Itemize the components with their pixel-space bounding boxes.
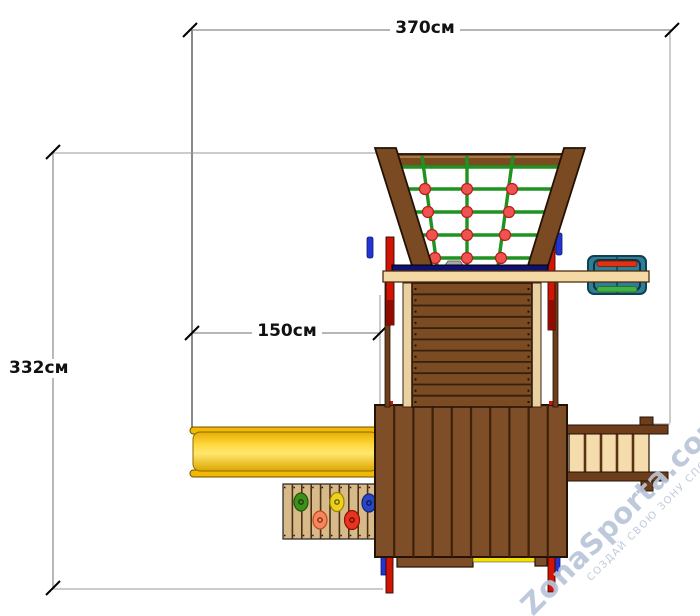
dimension-depth-label: 332см	[4, 359, 66, 378]
tower-body	[375, 401, 567, 557]
top-plank	[383, 271, 649, 282]
dimension-width-label: 370см	[385, 19, 465, 38]
tower-legs	[381, 556, 560, 593]
drawing-canvas	[0, 0, 700, 616]
slide	[190, 427, 378, 477]
climbing-wall	[283, 484, 377, 539]
playground-top-view-drawing: 370см 332см 150см ZonaSporta.com СОЗДАЙ …	[0, 0, 700, 616]
dimension-slide-label: 150см	[248, 322, 326, 341]
tower-roof-planks	[403, 283, 541, 407]
ladder	[567, 417, 668, 491]
